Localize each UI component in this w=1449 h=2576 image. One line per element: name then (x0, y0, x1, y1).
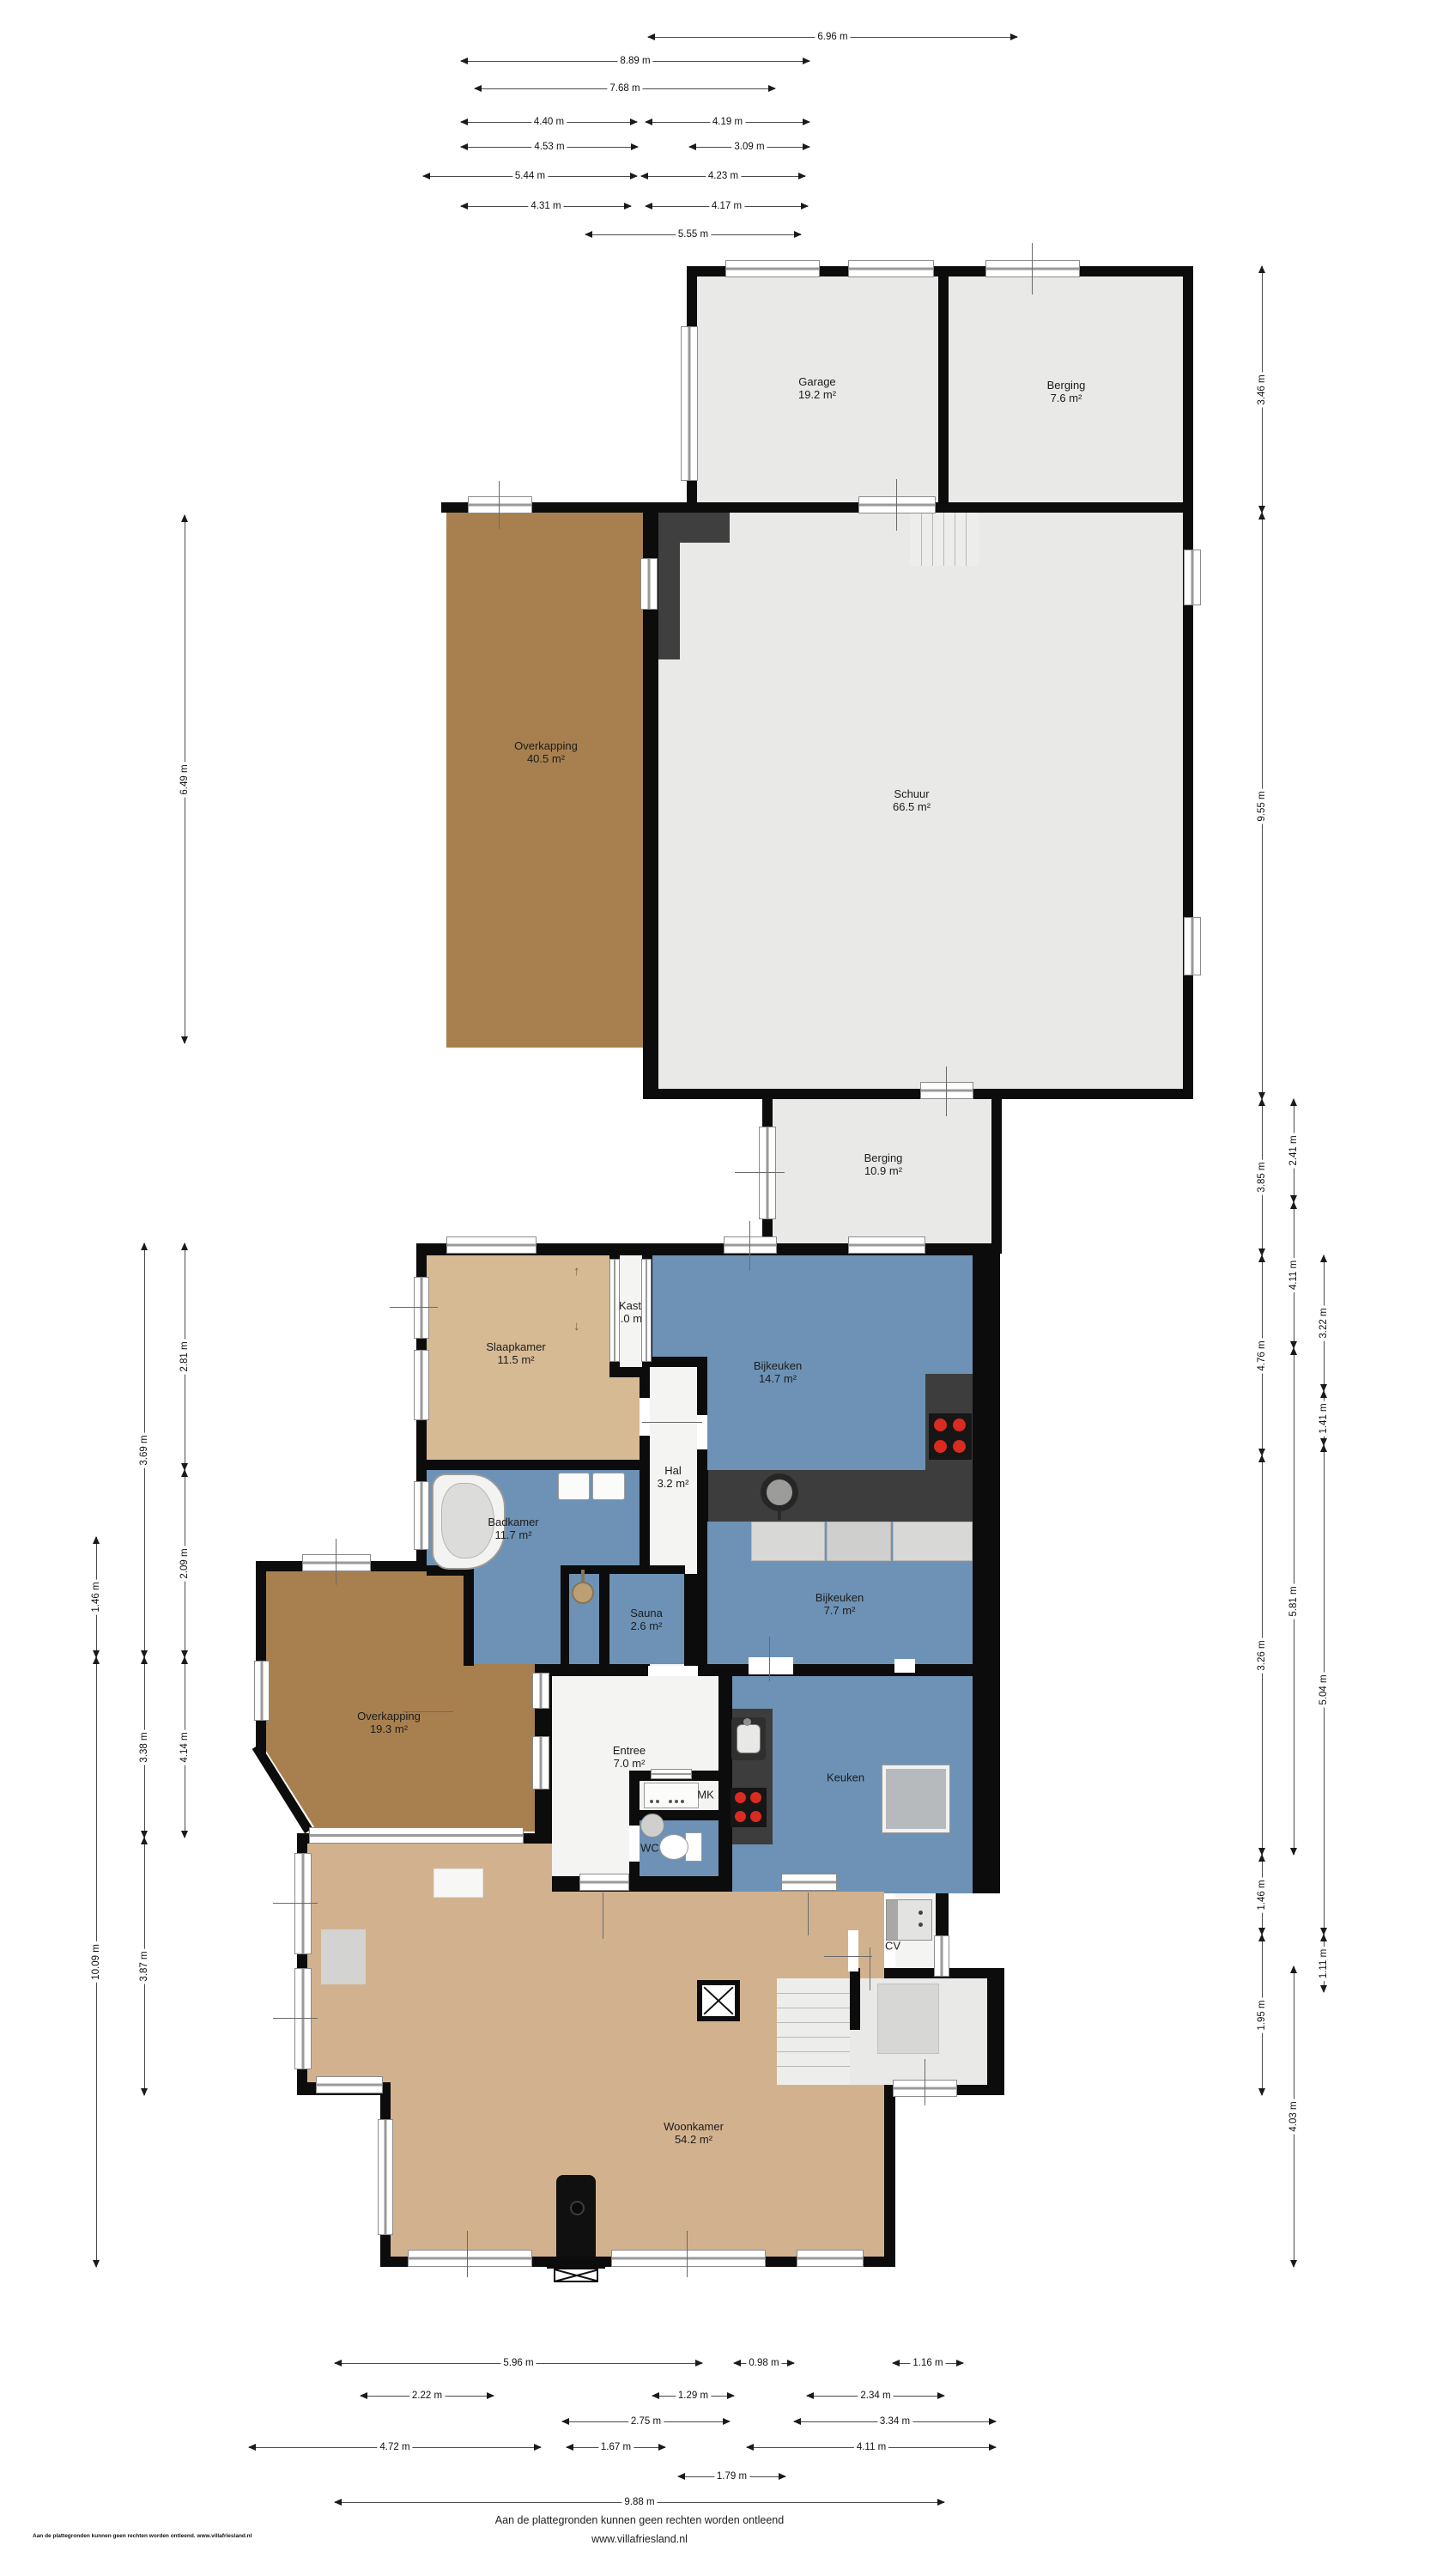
window (254, 1661, 270, 1721)
reference-tick (467, 2231, 468, 2277)
woonkamer-mat (321, 1929, 366, 1984)
kast-door-arrow-down: ↓ (573, 1319, 580, 1334)
bijkeuken-cabinet-3 (893, 1522, 973, 1561)
room-label-woonkamer: Woonkamer54.2 m² (664, 2120, 724, 2146)
window (579, 1874, 629, 1891)
bijkeuken-cabinet-2 (827, 1522, 891, 1561)
reference-tick (1032, 243, 1033, 295)
window (681, 326, 698, 481)
reference-tick (403, 1711, 453, 1712)
window (316, 2076, 383, 2093)
fireplace-vent (554, 2268, 598, 2282)
room-label-wc: WC (640, 1842, 659, 1855)
bijkeuken-sink (761, 1473, 798, 1511)
door-opening (848, 1930, 858, 1971)
dimension-label: 3.26 m (1257, 1637, 1267, 1673)
window (781, 1874, 837, 1891)
reference-tick (824, 1956, 872, 1957)
window (302, 1554, 371, 1571)
door-opening (697, 1415, 707, 1449)
room-label-slaapkamer: Slaapkamer11.5 m² (486, 1340, 545, 1366)
window (532, 1736, 549, 1789)
wall-sauna-west (599, 1574, 609, 1664)
dimension-label: 1.46 m (91, 1579, 101, 1614)
window (532, 1673, 549, 1709)
room-label-bijkeuken-klein: Bijkeuken7.7 m² (815, 1591, 864, 1617)
keuken-stove (731, 1788, 767, 1827)
dimension-label: 3.85 m (1257, 1159, 1267, 1194)
window (446, 1236, 537, 1254)
wall-stairs-stub (850, 1968, 860, 2030)
reference-tick (273, 2018, 318, 2019)
dimension-label: 7.68 m (607, 83, 642, 94)
dimension-label: 0.98 m (746, 2358, 781, 2368)
dimension-label: 1.46 m (1257, 1877, 1267, 1912)
room-label-hal: Hal3.2 m² (658, 1464, 689, 1490)
dimension-label: 5.55 m (676, 229, 711, 240)
door-opening (648, 1666, 698, 1676)
dimension-label: 1.11 m (1319, 1946, 1329, 1980)
reference-tick (273, 1903, 318, 1904)
window (724, 1236, 777, 1254)
dimension-label: 4.11 m (854, 2442, 888, 2452)
dimension-label: 9.88 m (621, 2497, 657, 2507)
dimension-label: 5.04 m (1319, 1672, 1329, 1707)
window (609, 1259, 620, 1362)
dimension-label: 3.46 m (1257, 372, 1267, 407)
dimension-label: 4.11 m (1288, 1258, 1299, 1292)
window (848, 1236, 925, 1254)
window (725, 260, 820, 277)
dimension-label: 1.16 m (910, 2358, 945, 2368)
window (414, 1350, 429, 1420)
dimension-label: 4.53 m (531, 142, 567, 152)
room-overkapping-schuur (446, 513, 643, 1048)
window (468, 496, 532, 513)
schuur-dark-corner-v (658, 513, 680, 659)
dimension-label: 2.09 m (179, 1546, 190, 1581)
dimension-label: 4.76 m (1257, 1338, 1267, 1373)
reference-tick (603, 1893, 603, 1939)
schuur-stairs (910, 513, 979, 566)
reference-tick (925, 2059, 925, 2105)
keuken-sink (731, 1717, 766, 1760)
fireplace-hearth (547, 2257, 605, 2269)
dimension-label: 6.49 m (179, 762, 190, 797)
dimension-label: 3.09 m (731, 142, 767, 152)
dimension-label: 1.41 m (1319, 1400, 1329, 1436)
door-opening (640, 1398, 650, 1436)
window (414, 1481, 429, 1550)
door-opening (894, 1659, 915, 1673)
window (651, 1769, 692, 1779)
dimension-label: 5.44 m (512, 171, 548, 181)
window (641, 1259, 652, 1362)
dimension-label: 3.22 m (1319, 1305, 1329, 1340)
reference-tick (870, 1947, 870, 1990)
badkamer-vanity (558, 1473, 625, 1500)
dimension-label: 1.29 m (676, 2391, 711, 2401)
dimension-label: 5.81 m (1288, 1583, 1299, 1619)
dimension-label: 4.72 m (377, 2442, 412, 2452)
window (848, 260, 934, 277)
window (408, 2250, 532, 2267)
room-label-keuken: Keuken (827, 1771, 864, 1784)
dimension-label: 4.40 m (531, 117, 567, 127)
footer-disclaimer: Aan de plattegronden kunnen geen rechten… (495, 2514, 784, 2526)
bijkeuken-stove (929, 1413, 972, 1460)
window (640, 558, 658, 610)
reference-tick (946, 1066, 947, 1116)
room-label-berging-boven: Berging7.6 m² (1047, 379, 1086, 404)
dimension-label: 3.34 m (877, 2416, 912, 2427)
floor-plan: ↑ ↓ Garage19.2 m² Berging7.6 m² Overkapp… (0, 0, 1449, 2576)
reference-tick (735, 1172, 785, 1173)
room-label-schuur: Schuur66.5 m² (893, 787, 931, 813)
window (611, 2250, 766, 2267)
reference-tick (642, 1422, 702, 1423)
window (934, 1935, 949, 1977)
window (797, 2250, 864, 2267)
window (1184, 917, 1201, 975)
room-label-mk: MK (697, 1789, 714, 1801)
cv-boiler (886, 1899, 932, 1941)
dimension-label: 2.81 m (179, 1339, 190, 1374)
outside-mask-1 (297, 2095, 380, 2267)
shower-arm (581, 1570, 585, 1583)
window (294, 1968, 312, 2069)
dimension-label: 4.31 m (528, 201, 563, 211)
window (414, 1277, 429, 1339)
mk-fusebox (644, 1783, 699, 1808)
reference-tick (896, 479, 897, 531)
wall-sauna-top (561, 1565, 685, 1574)
window (759, 1127, 776, 1219)
wall-badkamer-step-v (464, 1565, 474, 1666)
wall-hal-east (697, 1367, 707, 1578)
footer-website: www.villafriesland.nl (591, 2533, 688, 2545)
dimension-label: 2.22 m (409, 2391, 445, 2401)
door-opening (629, 1826, 640, 1862)
reference-tick (687, 2231, 688, 2277)
dimension-label: 4.23 m (706, 171, 741, 181)
dimension-label: 4.19 m (710, 117, 745, 127)
dimension-label: 4.17 m (709, 201, 744, 211)
wall-sauna-east (684, 1574, 707, 1664)
porch-mat (877, 1984, 939, 2054)
bijkeuken-sink-tap (778, 1510, 781, 1520)
dimension-label: 3.87 m (139, 1948, 149, 1984)
door-opening (749, 1657, 793, 1674)
woonkamer-stairs (777, 1978, 850, 2085)
window (309, 1827, 524, 1844)
dimension-label: 6.96 m (815, 32, 850, 42)
reference-tick (499, 481, 500, 529)
window (378, 2119, 393, 2235)
dimension-label: 1.79 m (714, 2471, 749, 2482)
dimension-label: 5.96 m (500, 2358, 536, 2368)
reference-tick (390, 1307, 438, 1308)
dimension-label: 2.75 m (628, 2416, 664, 2427)
stair-shaft-box (697, 1980, 740, 2021)
watermark: Aan de plattegronden kunnen geen rechten… (33, 2533, 252, 2539)
dimension-label: 3.69 m (139, 1432, 149, 1467)
dimension-label: 3.38 m (139, 1729, 149, 1765)
room-label-badkamer: Badkamer11.7 m² (488, 1516, 538, 1541)
shower-head (572, 1582, 594, 1604)
dimension-label: 2.34 m (858, 2391, 893, 2401)
wall-hal-top (642, 1357, 707, 1367)
wc-sink (640, 1814, 664, 1838)
bijkeuken-cabinet-1 (751, 1522, 825, 1561)
reference-tick (769, 1637, 770, 1681)
room-label-cv: CV (885, 1940, 900, 1953)
dimension-label: 2.41 m (1288, 1133, 1299, 1168)
window (858, 496, 936, 513)
dimension-label: 1.95 m (1257, 1997, 1267, 2032)
dimension-label: 8.89 m (617, 56, 652, 66)
dimension-label: 9.55 m (1257, 788, 1267, 823)
reference-tick (808, 1893, 809, 1935)
reference-tick (749, 1221, 750, 1271)
dimension-label: 10.09 m (91, 1941, 101, 1983)
window (294, 1853, 312, 1954)
wc-toilet-bowl (659, 1834, 688, 1860)
room-label-berging-midden: Berging10.9 m² (864, 1151, 903, 1177)
dimension-label: 1.67 m (598, 2442, 634, 2452)
window (985, 260, 1080, 277)
room-label-entree: Entree7.0 m² (613, 1744, 646, 1770)
wall-shower-v (561, 1565, 569, 1664)
room-label-garage: Garage19.2 m² (798, 375, 836, 401)
dimension-label: 4.03 m (1288, 2099, 1299, 2134)
fireplace (556, 2175, 596, 2258)
room-label-bijkeuken-groot: Bijkeuken14.7 m² (754, 1359, 802, 1385)
room-label-sauna: Sauna2.6 m² (630, 1607, 663, 1632)
keuken-table (882, 1765, 949, 1832)
window (920, 1082, 973, 1099)
room-slaapkamer-ext (609, 1377, 640, 1460)
woonkamer-rug (433, 1868, 483, 1898)
room-label-overkapping-woning: Overkapping19.3 m² (357, 1710, 421, 1735)
window (1184, 550, 1201, 605)
dimension-label: 4.14 m (179, 1729, 190, 1765)
kast-door-arrow-up: ↑ (573, 1264, 580, 1279)
reference-tick (336, 1539, 336, 1585)
room-label-overkapping-schuur: Overkapping40.5 m² (514, 739, 578, 765)
